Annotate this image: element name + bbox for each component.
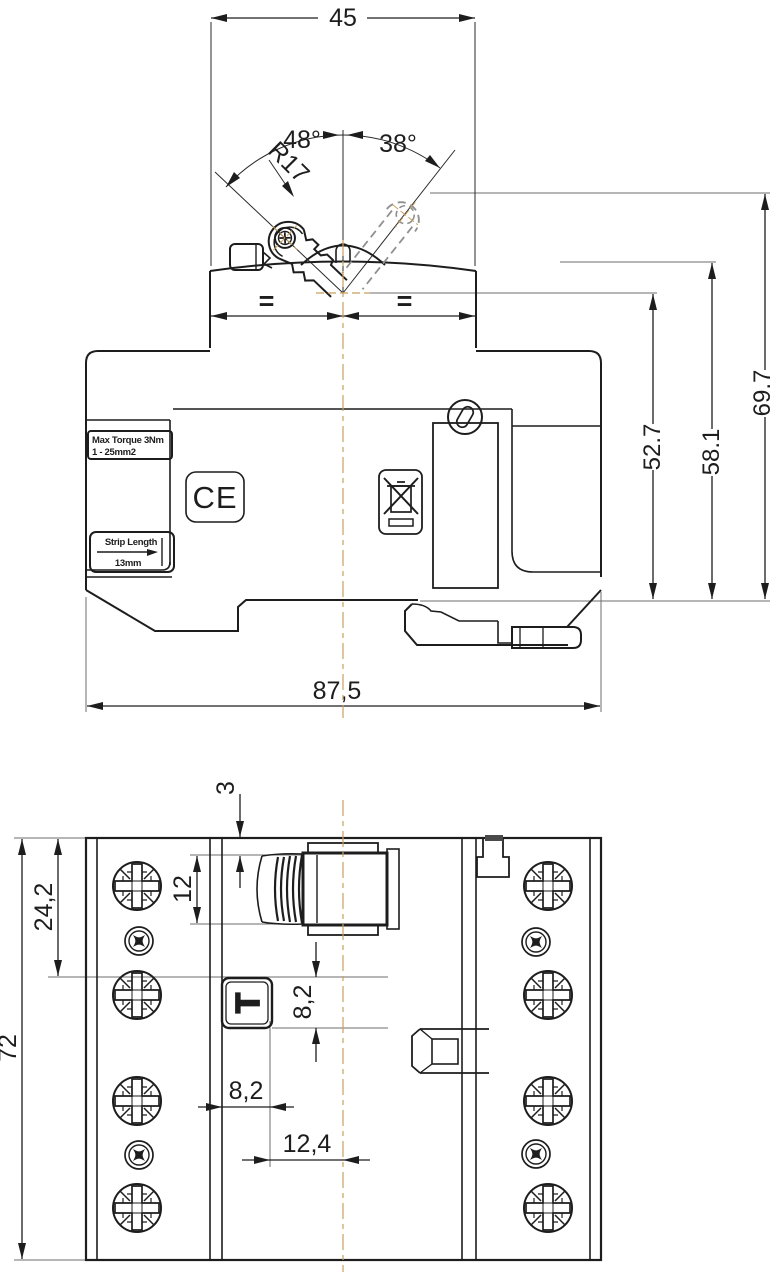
dim-handle-offset: 3 — [212, 781, 244, 888]
dim-overall-width-value: 87,5 — [313, 677, 362, 705]
strip-length-title: Strip Length — [105, 537, 158, 548]
pozidriv-screw-icon — [524, 1184, 572, 1232]
pozidriv-screw-icon — [524, 862, 572, 910]
max-torque-line2: 1 - 25mm2 — [92, 447, 136, 458]
reference-lines — [86, 193, 770, 712]
dim-center-offset: 12,4 — [242, 1130, 370, 1164]
pozidriv-screw-icon — [113, 1077, 161, 1125]
housing-screw-icon — [448, 400, 482, 434]
dim-overall-height: 72 — [0, 839, 26, 1259]
dim-terminal-spacing-value: 24,2 — [30, 883, 58, 932]
test-button: T — [222, 978, 272, 1028]
dim-handle-width-value: 12 — [169, 875, 197, 903]
dim-overall-height-value: 72 — [0, 1034, 22, 1062]
dimension-drawing: 45 48° 38° R17 — [0, 0, 772, 1279]
top-view: 45 48° 38° R17 — [86, 4, 772, 718]
max-torque-line1: Max Torque 3Nm — [92, 435, 164, 446]
pozidriv-screw-icon — [113, 862, 161, 910]
small-screw-icon — [522, 928, 550, 956]
equal-mark-left: = — [259, 286, 274, 316]
reference-lines-bottom — [14, 838, 388, 1260]
equal-mark-right: = — [397, 286, 412, 316]
pozidriv-screw-icon — [113, 971, 161, 1019]
mounting-tab — [477, 835, 509, 877]
dim-handle-width: 12 — [169, 856, 201, 923]
weee-crossed-bin-icon — [379, 470, 422, 534]
angle-right-label: 38° — [379, 130, 417, 158]
max-torque-label: Max Torque 3Nm 1 - 25mm2 — [88, 431, 172, 459]
dim-heights-right: 52.7 58.1 69.7 — [639, 194, 772, 599]
small-screw-icon — [522, 1140, 550, 1168]
dim-test-button-h-value: 8,2 — [229, 1077, 264, 1105]
dim-test-button-v: 8,2 — [289, 942, 320, 1062]
test-button-letter: T — [229, 993, 266, 1013]
dim-height-housing-value: 58.1 — [698, 429, 725, 476]
dim-top-width-value: 45 — [329, 4, 357, 32]
din-clip-plan — [412, 1029, 489, 1073]
dim-height-lever-value: 69.7 — [749, 370, 772, 417]
dim-test-button-v-value: 8,2 — [289, 985, 317, 1020]
pozidriv-screw-icon — [524, 1077, 572, 1125]
dim-terminal-spacing: 24,2 — [30, 839, 62, 976]
strip-length-value: 13mm — [115, 558, 141, 569]
ce-mark: CE — [186, 472, 244, 522]
ce-mark-text: CE — [192, 480, 237, 515]
strip-length-label: Strip Length 13mm — [90, 532, 174, 572]
bottom-view: T 3 — [0, 781, 601, 1272]
dim-test-button-h: 8,2 — [198, 1077, 294, 1111]
dim-height-pivot-value: 52.7 — [639, 424, 666, 471]
small-screw-icon — [125, 927, 153, 955]
pozidriv-screw-icon — [524, 971, 572, 1019]
toggle-handle-plan — [257, 843, 399, 935]
pozidriv-screw-icon — [113, 1184, 161, 1232]
dim-handle-offset-value: 3 — [212, 781, 240, 795]
small-screw-icon — [125, 1141, 153, 1169]
technical-drawing-page: 45 48° 38° R17 — [0, 0, 772, 1279]
dim-center-offset-value: 12,4 — [283, 1130, 332, 1158]
